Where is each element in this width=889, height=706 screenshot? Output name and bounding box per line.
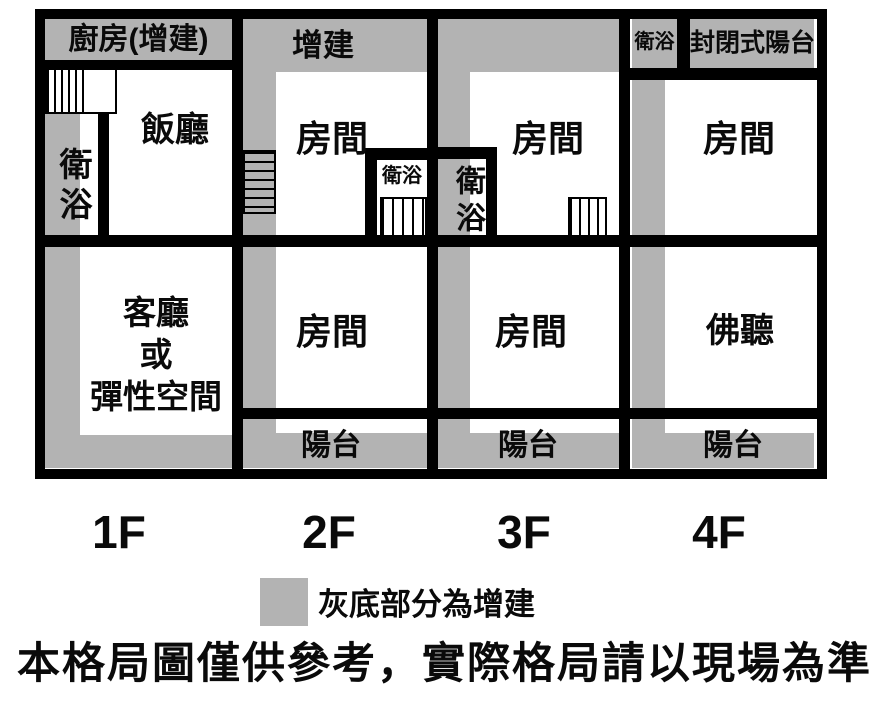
room-label-4f-room: 房間 xyxy=(679,118,799,159)
wall-1f-kitchen-bottom xyxy=(45,60,232,70)
wall-1f-bath-right xyxy=(98,113,109,237)
wall-4f-top xyxy=(630,68,817,80)
wall-2f-bath-left xyxy=(365,148,377,247)
disclaimer-text: 本格局圖僅供參考，實際格局請以現場為準 xyxy=(10,640,879,689)
room-label-1f-kitchen: 廚房(增建) xyxy=(45,23,232,58)
wall-3f-bath-right xyxy=(486,147,497,247)
room-label-3f-balcony: 陽台 xyxy=(473,429,583,464)
room-label-2f-addition: 增建 xyxy=(243,28,403,64)
floor-label-2f: 2F xyxy=(279,506,379,559)
wall-middle-horizontal xyxy=(45,235,817,247)
room-label-4f-bath: 衛浴 xyxy=(632,31,677,54)
room-label-4f-enclosed-balcony: 封閉式陽台 xyxy=(690,29,814,58)
room-label-2f-room-lower: 房間 xyxy=(272,311,392,352)
floor-label-3f: 3F xyxy=(474,506,574,559)
room-label-1f-living-line2: 或 xyxy=(80,334,232,376)
room-label-1f-living-line1: 客廳 xyxy=(80,292,232,334)
room-label-1f-dining: 飯廳 xyxy=(118,111,232,150)
room-label-4f-balcony: 陽台 xyxy=(678,429,788,464)
room-label-3f-bath: 衛浴 xyxy=(444,160,482,244)
legend-addition-swatch xyxy=(260,578,308,626)
room-label-2f-bath: 衛浴 xyxy=(377,165,427,188)
floor-label-1f: 1F xyxy=(69,506,169,559)
room-label-1f-living: 客廳 或 彈性空間 xyxy=(80,292,232,418)
floor-label-4f: 4F xyxy=(669,506,769,559)
wall-balcony-horizontal xyxy=(232,408,817,419)
legend-label: 灰底部分為增建 xyxy=(318,587,558,623)
room-label-2f-balcony: 陽台 xyxy=(276,429,386,464)
room-label-1f-living-line3: 彈性空間 xyxy=(80,376,232,418)
floorplan-page: 廚房(增建) 飯廳 衛浴 客廳 或 彈性空間 增建 房間 衛浴 房間 陽台 房間… xyxy=(0,0,889,706)
room-label-3f-room-upper: 房間 xyxy=(488,118,608,159)
room-label-4f-buddha-hall: 佛聽 xyxy=(680,312,800,351)
room-label-3f-room-lower: 房間 xyxy=(471,311,591,352)
room-label-2f-room-upper: 房間 xyxy=(272,118,392,159)
room-label-1f-bath: 衛浴 xyxy=(50,138,90,236)
